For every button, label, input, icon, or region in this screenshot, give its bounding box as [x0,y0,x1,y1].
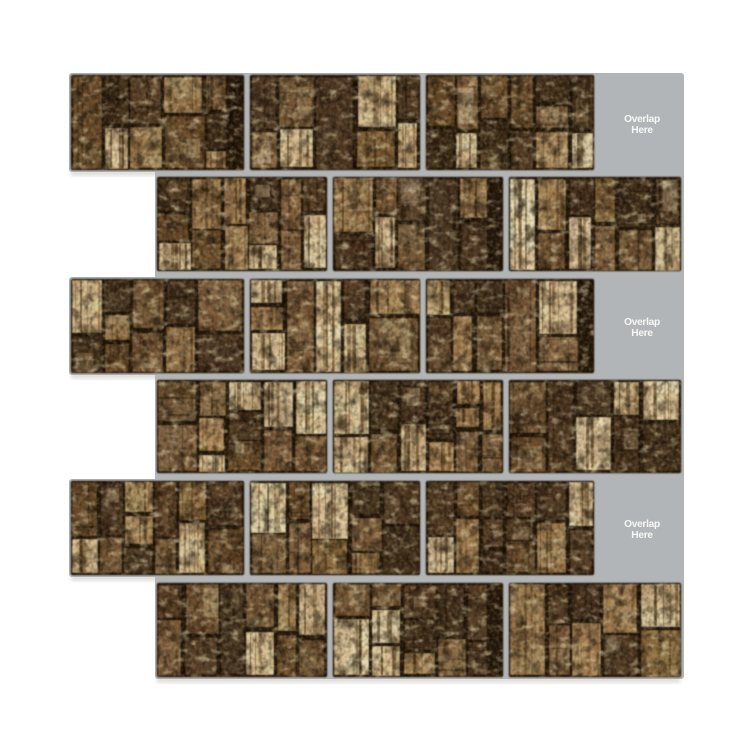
svg-text:Here: Here [631,328,653,339]
svg-text:Overlap: Overlap [624,114,660,125]
svg-text:Here: Here [631,530,653,541]
svg-text:Overlap: Overlap [624,519,660,530]
svg-text:Overlap: Overlap [624,317,660,328]
svg-text:Here: Here [631,125,653,136]
